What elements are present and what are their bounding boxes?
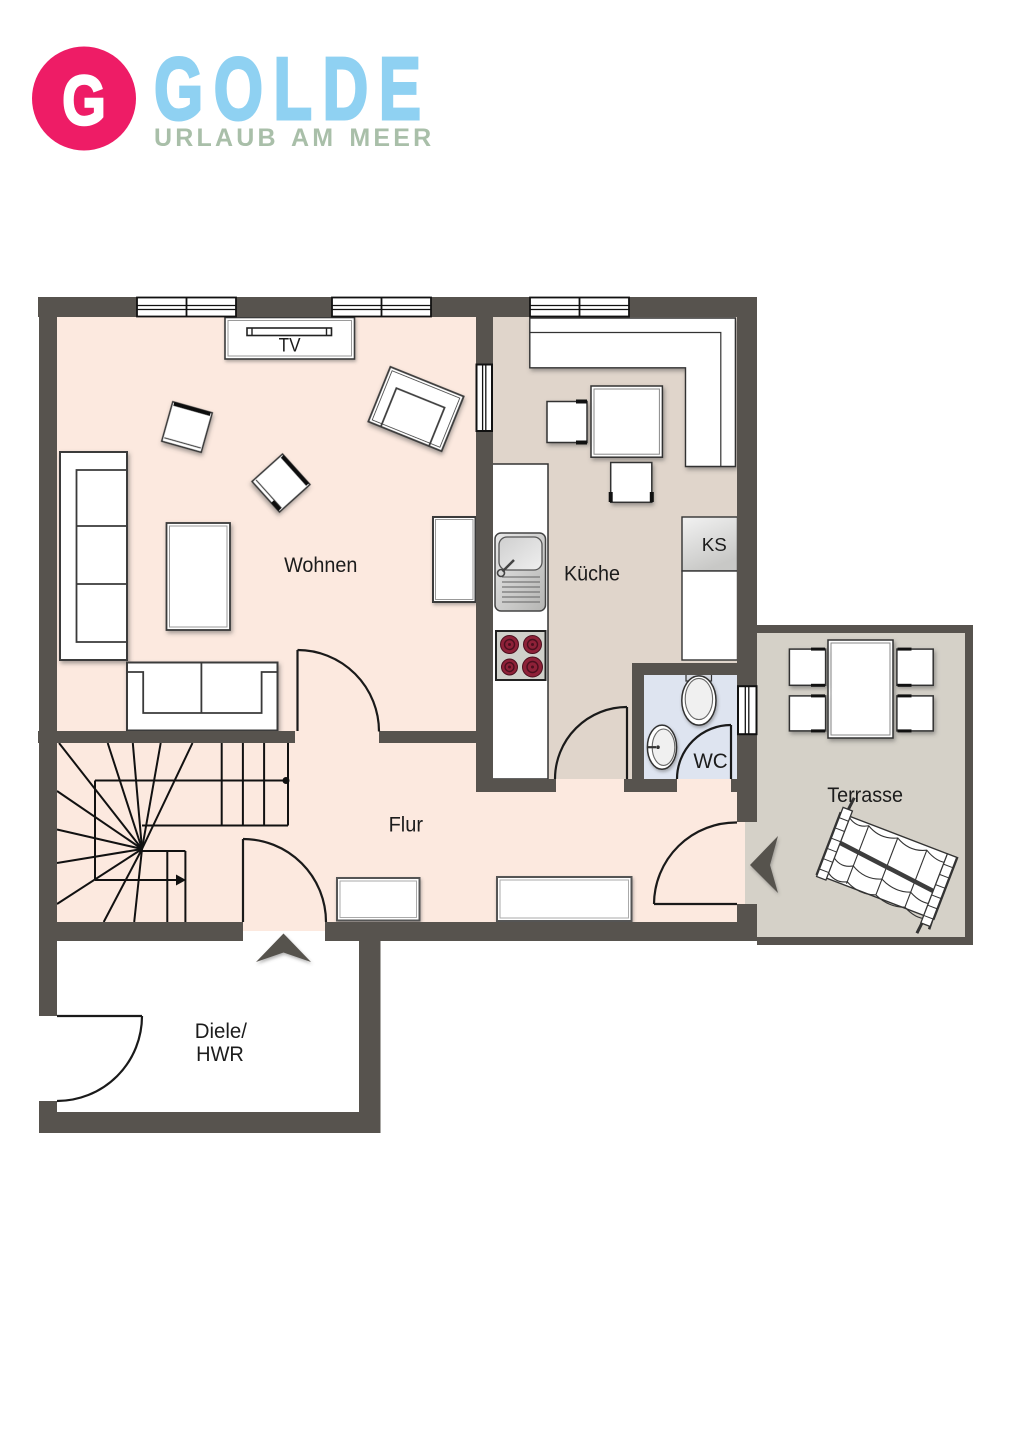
svg-text:G: G [62,63,106,140]
svg-text:TV: TV [279,333,302,355]
svg-text:URLAUB AM MEER: URLAUB AM MEER [154,124,434,152]
svg-text:WC: WC [693,750,727,773]
svg-text:KS: KS [702,534,727,555]
svg-text:Diele/: Diele/ [195,1019,247,1043]
svg-text:HWR: HWR [196,1042,244,1066]
svg-text:Küche: Küche [564,562,620,586]
svg-text:Flur: Flur [389,813,424,837]
svg-text:Terrasse: Terrasse [827,783,903,807]
svg-text:Wohnen: Wohnen [284,553,357,577]
